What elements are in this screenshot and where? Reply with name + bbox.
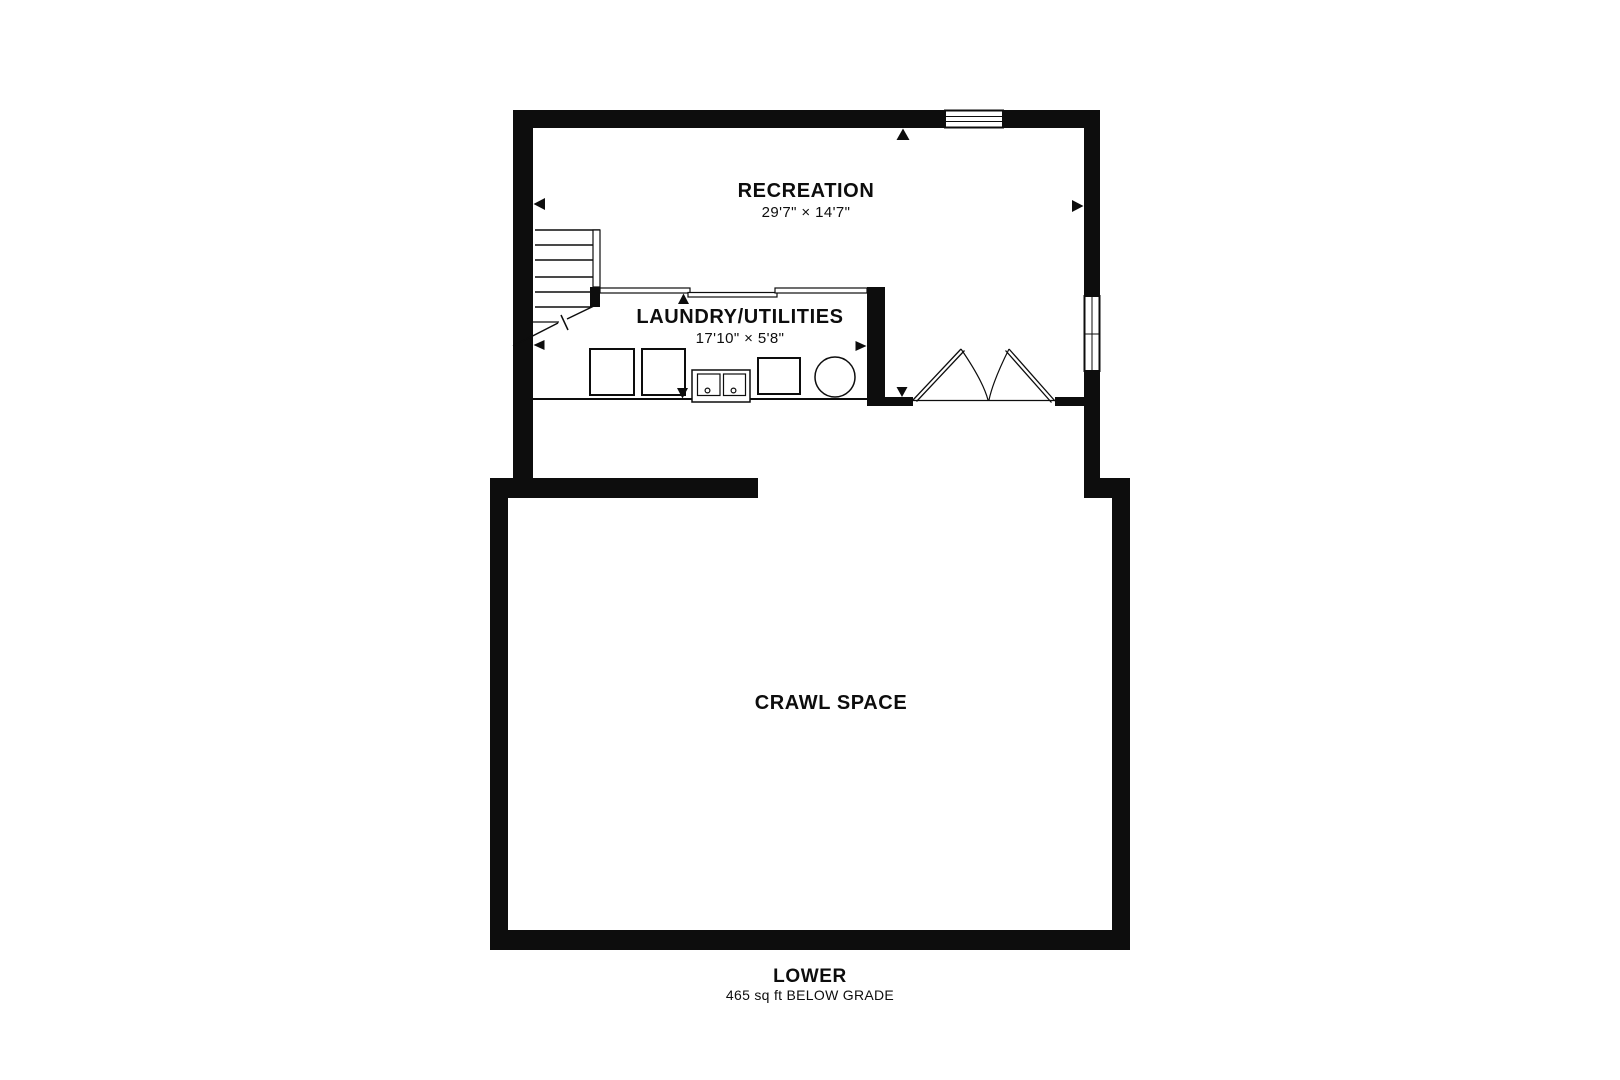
room-label-laundry: LAUNDRY/UTILITIES	[636, 306, 843, 328]
dim-arrow-down-icon	[897, 387, 908, 397]
dim-arrow-up-icon	[678, 294, 689, 305]
room-dims-laundry: 17'10" × 5'8"	[696, 330, 785, 347]
right-wall-window-icon	[1085, 296, 1100, 371]
top-wall-window-icon	[945, 111, 1003, 128]
floor-plan-drawing: RECREATION 29'7" × 14'7" LAUNDRY/UTILITI…	[0, 0, 1620, 1080]
wall-top-left	[513, 110, 945, 128]
stair-break-tick	[561, 315, 568, 330]
room-label-crawl-space: CRAWL SPACE	[755, 692, 908, 714]
crawl-wall-right	[1112, 478, 1130, 950]
water-heater-icon	[815, 357, 855, 397]
utility-unit-icon	[758, 358, 800, 394]
stair-stringer	[593, 230, 600, 287]
floor-area-note: 465 sq ft BELOW GRADE	[726, 987, 894, 1003]
walls	[490, 110, 1130, 950]
door-jamb-left	[885, 397, 913, 406]
room-dims-recreation: 29'7" × 14'7"	[762, 204, 851, 221]
crawl-wall-bottom	[490, 930, 1130, 950]
room-label-recreation: RECREATION	[738, 180, 875, 202]
crawl-wall-left	[490, 478, 508, 950]
laundry-sink-icon	[692, 370, 750, 402]
crawl-wall-top	[490, 478, 758, 498]
dim-arrow-right-icon	[1072, 200, 1084, 212]
dim-arrow-up-icon	[897, 129, 910, 141]
dim-arrow-right-icon	[856, 341, 867, 351]
dim-arrow-left-icon	[534, 340, 545, 350]
laundry-wall-right	[867, 287, 885, 406]
bifold-door-icon	[913, 349, 1055, 403]
door-jamb-right	[1055, 397, 1084, 406]
floor-name-label: LOWER	[773, 966, 847, 987]
wall-left	[513, 110, 533, 498]
floor-plan-page: RECREATION 29'7" × 14'7" LAUNDRY/UTILITI…	[0, 0, 1620, 1080]
washer-icon	[590, 349, 634, 395]
appliances	[590, 349, 855, 402]
dim-arrow-left-icon	[534, 198, 546, 210]
wall-right-upper	[1084, 110, 1100, 296]
stair-newel	[590, 287, 600, 307]
